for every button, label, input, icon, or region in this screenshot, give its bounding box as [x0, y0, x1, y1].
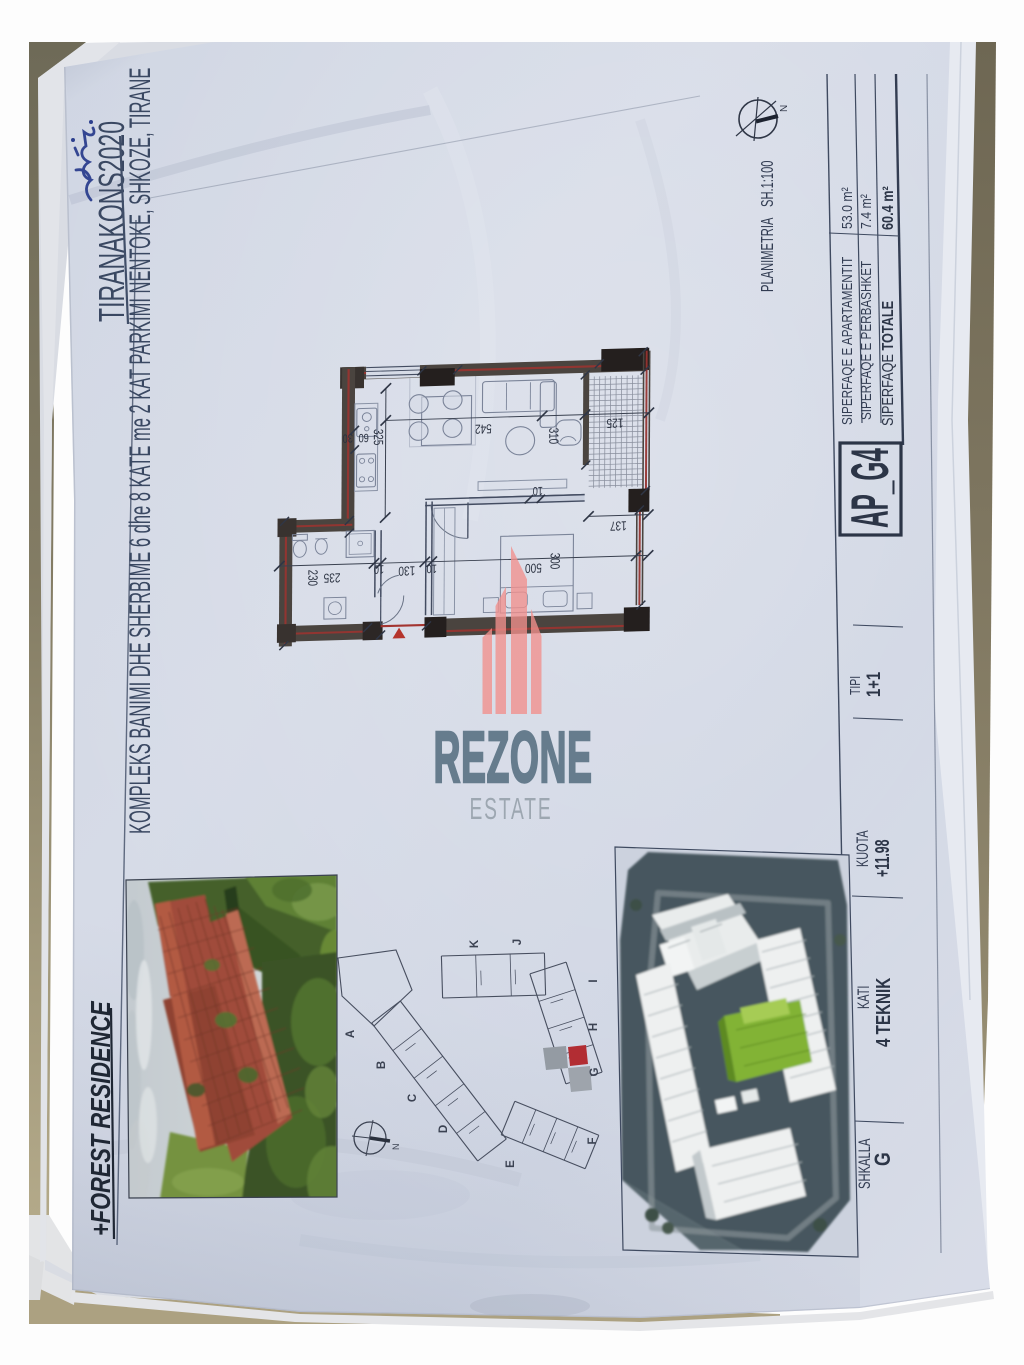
svg-text:N: N [779, 105, 790, 112]
svg-text:SIPERFAQE TOTALE: SIPERFAQE TOTALE [880, 301, 897, 426]
svg-text:D: D [438, 1125, 450, 1133]
svg-text:10: 10 [533, 483, 543, 497]
svg-text:N: N [391, 1144, 401, 1151]
svg-text:310: 310 [546, 427, 561, 444]
svg-text:TIPI: TIPI [847, 676, 863, 695]
svg-text:7.4 m²: 7.4 m² [858, 194, 874, 229]
svg-text:+11.98: +11.98 [871, 839, 894, 877]
svg-text:H: H [588, 1023, 600, 1031]
svg-text:KOMPLEKS BANIMI DHE SHERBIME 6: KOMPLEKS BANIMI DHE SHERBIME 6 dhe 8 KAT… [124, 68, 157, 834]
svg-text:325: 325 [370, 429, 385, 446]
svg-text:60.4 m²: 60.4 m² [880, 186, 897, 230]
svg-text:542: 542 [475, 421, 492, 436]
svg-text:F: F [587, 1137, 599, 1144]
svg-text:500: 500 [525, 560, 542, 575]
svg-text:60: 60 [358, 430, 368, 444]
svg-text:ESTATE: ESTATE [469, 793, 552, 827]
svg-text:137: 137 [610, 518, 627, 533]
svg-text:1+1: 1+1 [863, 672, 884, 697]
svg-text:G: G [871, 1152, 895, 1166]
svg-text:J: J [512, 939, 524, 945]
svg-text:B: B [376, 1061, 388, 1069]
svg-text:230: 230 [305, 569, 320, 586]
svg-text:E: E [505, 1160, 517, 1168]
svg-text:10: 10 [427, 561, 437, 575]
svg-text:300: 300 [547, 553, 562, 570]
svg-text:235: 235 [323, 570, 340, 585]
svg-text:4 TEKNIK: 4 TEKNIK [872, 978, 895, 1047]
svg-text:REZONE: REZONE [433, 718, 592, 798]
svg-text:30: 30 [343, 431, 353, 445]
svg-text:A: A [345, 1030, 357, 1038]
svg-text:53.0 m²: 53.0 m² [839, 187, 855, 229]
svg-text:SH.1:100: SH.1:100 [757, 160, 777, 207]
svg-text:KUOTA: KUOTA [854, 830, 873, 867]
svg-text:SIPERFAQE E PERBASHKET: SIPERFAQE E PERBASHKET [858, 261, 875, 420]
svg-text:130: 130 [398, 563, 415, 578]
svg-text:C: C [407, 1094, 419, 1102]
svg-text:AP_G4: AP_G4 [840, 448, 899, 528]
svg-text:G: G [589, 1067, 601, 1076]
svg-text:10: 10 [374, 562, 384, 576]
svg-text:SIPERFAQE E APARTAMENTIT: SIPERFAQE E APARTAMENTIT [839, 257, 856, 425]
svg-text:KATI: KATI [855, 986, 874, 1009]
svg-text:I: I [588, 979, 600, 982]
svg-text:K: K [469, 939, 481, 948]
svg-text:125: 125 [606, 415, 623, 430]
svg-text:PLANIMETRIA: PLANIMETRIA [757, 218, 777, 292]
